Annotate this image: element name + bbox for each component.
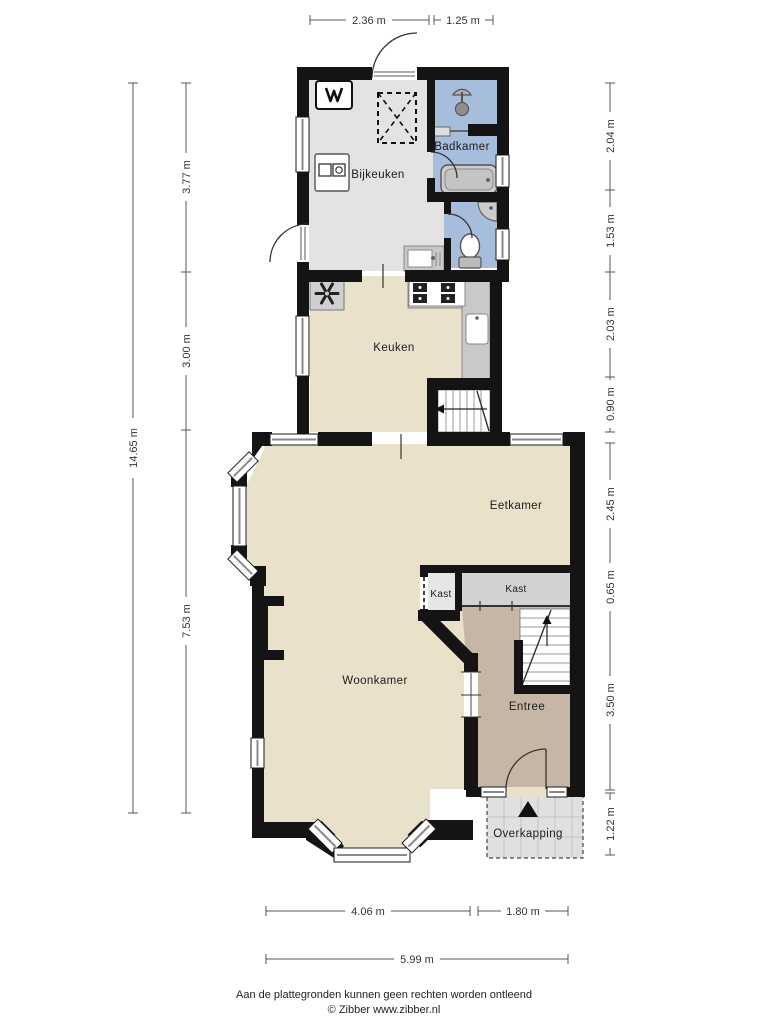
floorplan-page: Bijkeuken Badkamer Keuken Eetkamer Woonk… bbox=[0, 0, 768, 1024]
dim-bottom-2: 1.80 m bbox=[506, 906, 540, 918]
bathtub-icon bbox=[441, 165, 497, 194]
room-label-entree: Entree bbox=[509, 701, 545, 713]
room-label-kast-right: Kast bbox=[505, 584, 526, 595]
dim-right-8: 1.22 m bbox=[605, 807, 617, 841]
dim-bottom-1: 4.06 m bbox=[351, 906, 385, 918]
room-label-woonkamer: Woonkamer bbox=[342, 675, 407, 687]
footer-credit: © Zibber www.zibber.nl bbox=[328, 1004, 441, 1016]
dim-right-4: 0.90 m bbox=[605, 387, 617, 421]
stairs-kitchen bbox=[435, 390, 490, 432]
dim-top-1: 2.36 m bbox=[352, 15, 386, 27]
floors bbox=[246, 79, 570, 868]
dim-left-2: 3.00 m bbox=[181, 334, 193, 368]
dim-right-3: 2.03 m bbox=[605, 307, 617, 341]
room-label-bijkeuken: Bijkeuken bbox=[351, 169, 404, 181]
dim-left-3: 7.53 m bbox=[181, 604, 193, 638]
dim-right-1: 2.04 m bbox=[605, 119, 617, 153]
dim-bottom-3: 5.99 m bbox=[400, 954, 434, 966]
dim-right-2: 1.53 m bbox=[605, 214, 617, 248]
dim-left-1: 3.77 m bbox=[181, 160, 193, 194]
floorplan-svg: Bijkeuken Badkamer Keuken Eetkamer Woonk… bbox=[0, 0, 768, 1024]
dim-right-5: 2.45 m bbox=[605, 487, 617, 521]
room-label-kast-left: Kast bbox=[430, 589, 451, 600]
footer: Aan de plattegronden kunnen geen rechten… bbox=[236, 989, 532, 1016]
toilet-icon bbox=[459, 234, 481, 268]
dim-right-7: 3.50 m bbox=[605, 683, 617, 717]
utility-sink-icon bbox=[404, 246, 444, 271]
stairs-entree bbox=[520, 609, 570, 689]
kitchen-sink-icon bbox=[466, 314, 488, 344]
room-label-eetkamer: Eetkamer bbox=[490, 500, 542, 512]
stove-icon bbox=[409, 280, 465, 306]
room-label-keuken: Keuken bbox=[373, 342, 414, 354]
footer-disclaimer: Aan de plattegronden kunnen geen rechten… bbox=[236, 989, 532, 1001]
dim-right-6: 0.65 m bbox=[605, 570, 617, 604]
room-label-overkapping: Overkapping bbox=[493, 828, 563, 840]
washer-icon bbox=[315, 154, 349, 191]
dim-left-outer: 14.65 m bbox=[128, 428, 140, 468]
room-label-badkamer: Badkamer bbox=[434, 141, 490, 153]
boiler-icon bbox=[316, 81, 352, 109]
dim-top-2: 1.25 m bbox=[446, 15, 480, 27]
